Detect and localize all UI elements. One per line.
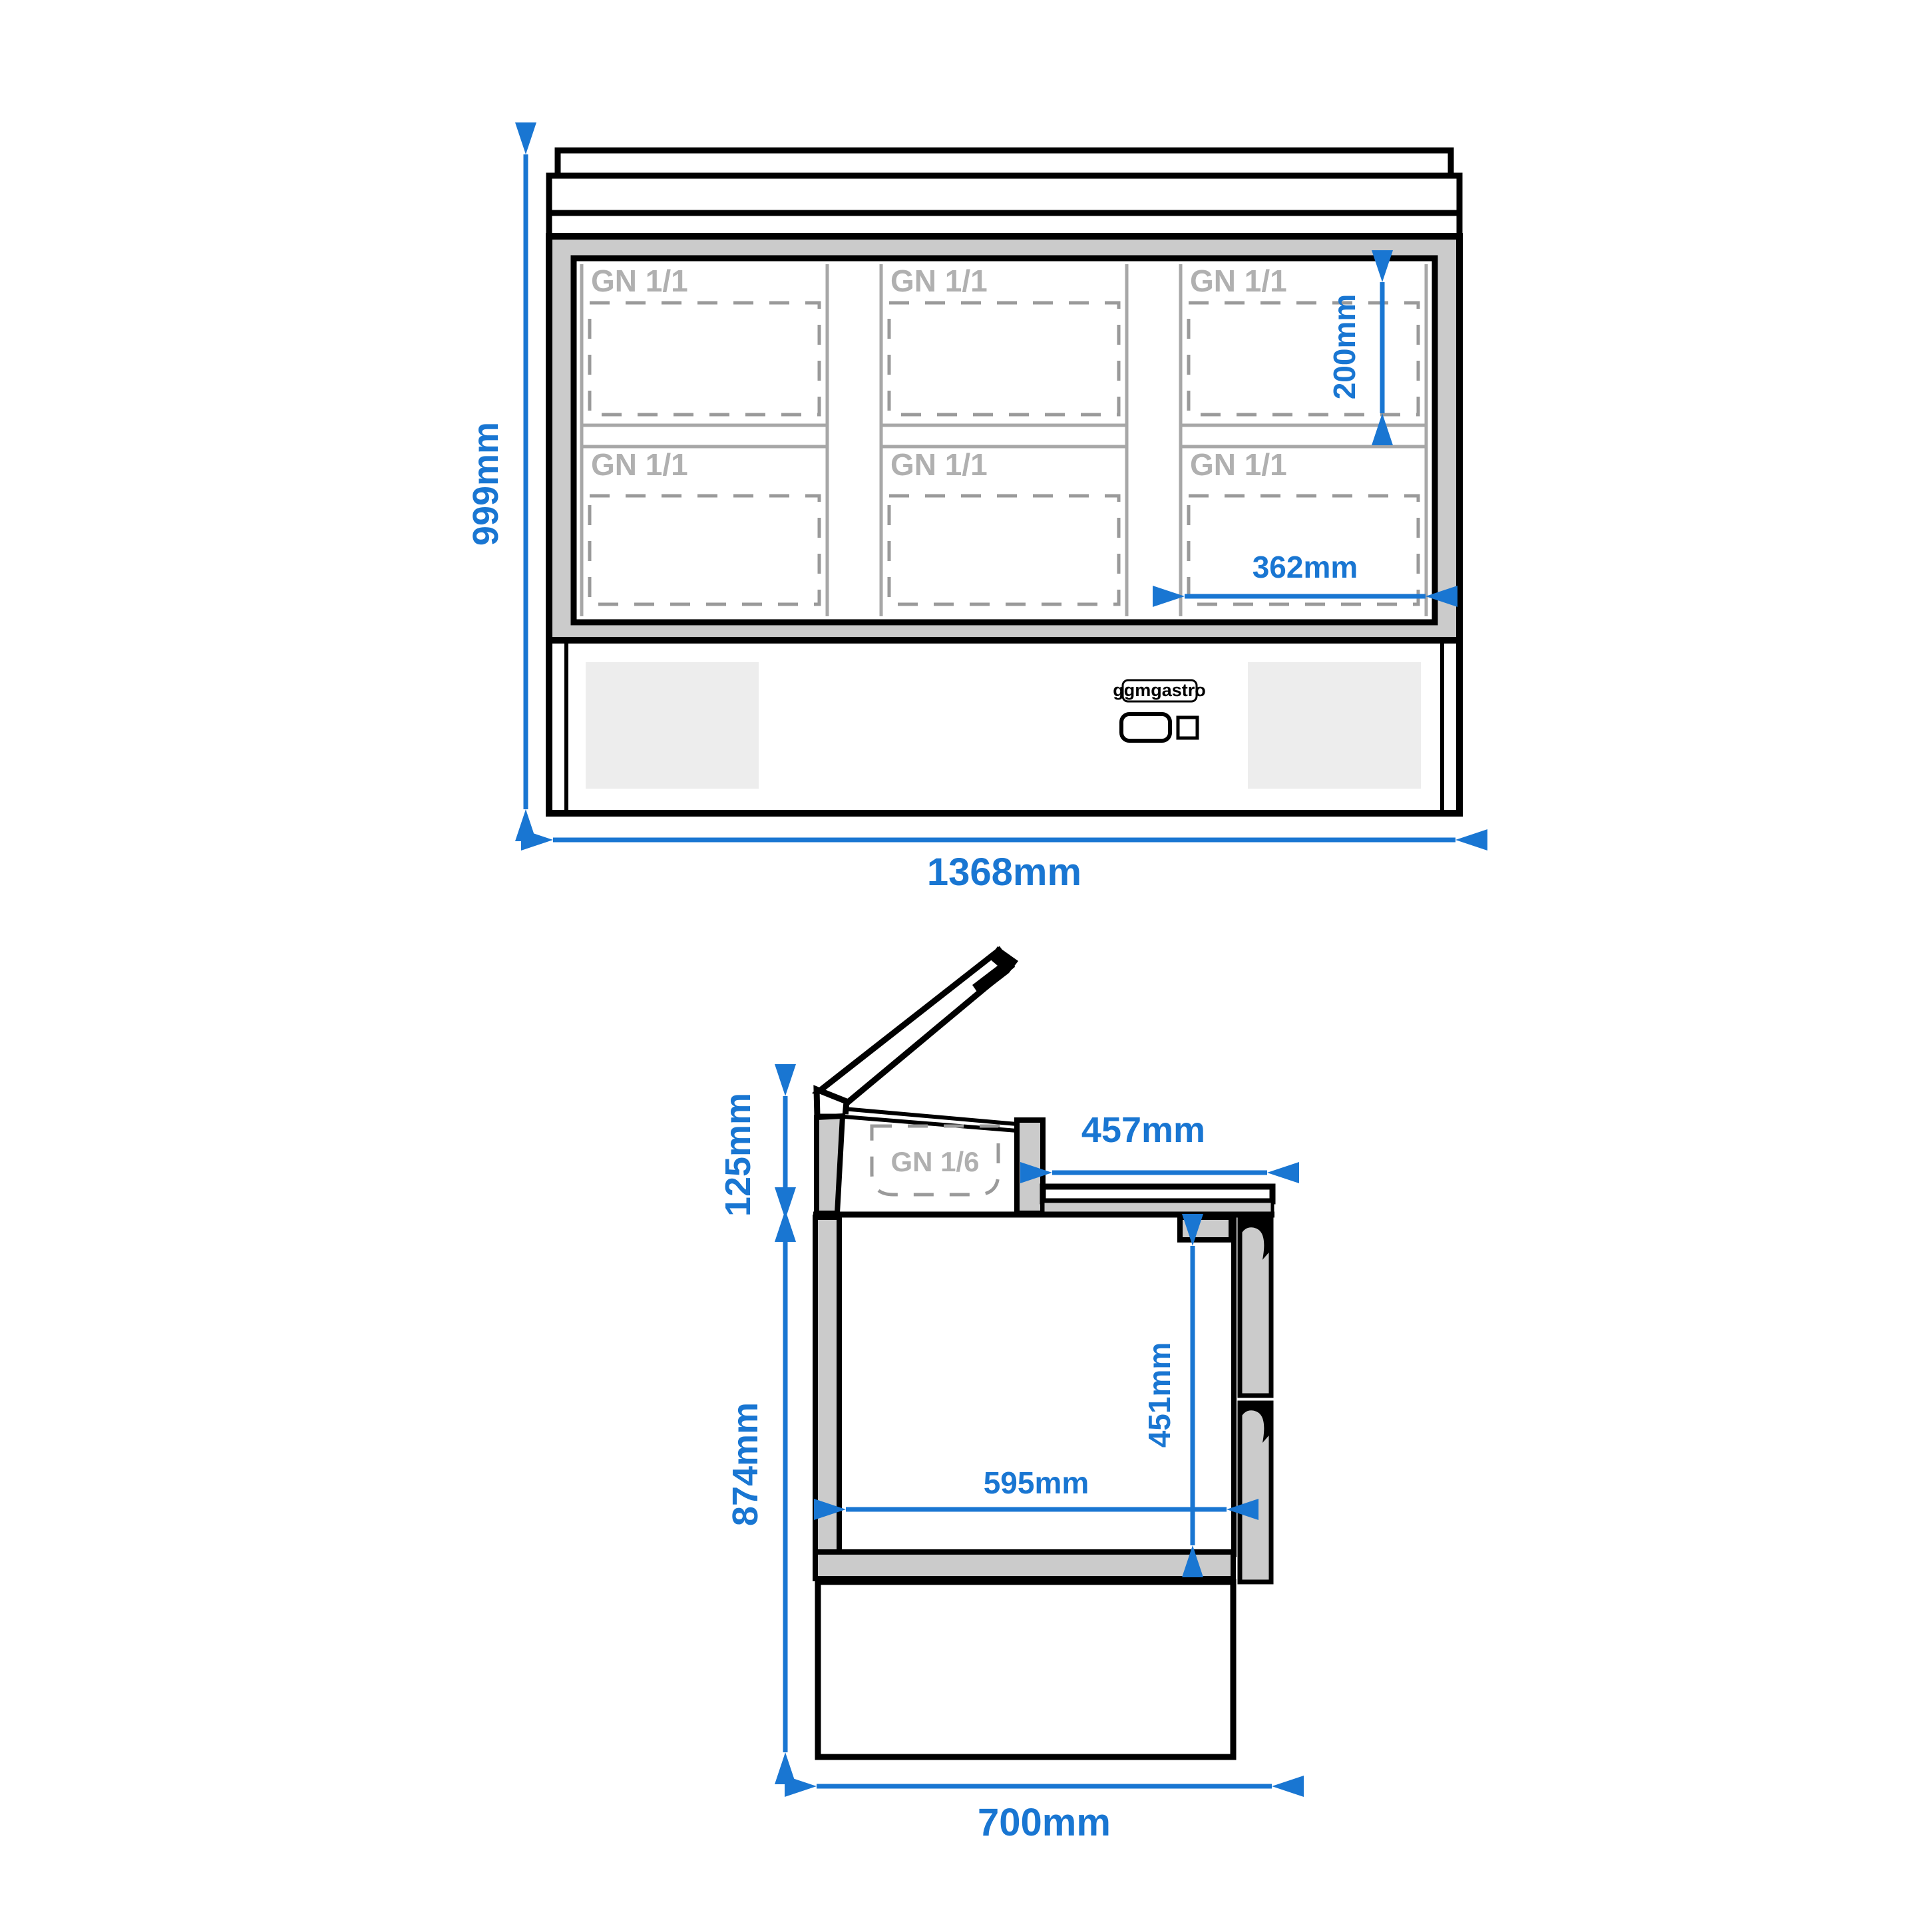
technical-drawing-page: GN 1/1 GN 1/1 GN 1/1 GN 1/1 GN 1/1 GN 1/…: [0, 0, 1932, 1932]
lid-front-strip: [549, 176, 1459, 213]
dim-overall-depth-label: 700mm: [978, 1801, 1111, 1844]
interior-top-notch: [1180, 1217, 1231, 1240]
pan-label: GN 1/1: [591, 264, 688, 298]
dim-interior-height-label: 451mm: [1142, 1342, 1177, 1448]
counter-underside: [1043, 1201, 1272, 1213]
dim-pan-depth-label: 200mm: [1327, 294, 1362, 400]
dim-pan-width-label: 362mm: [1253, 550, 1358, 584]
body-bottom-slab: [815, 1552, 1233, 1579]
control-panel: [1121, 714, 1197, 741]
base-plinth: [818, 1582, 1233, 1757]
lid-strip: [818, 950, 1011, 1103]
pan-label: GN 1/1: [1190, 264, 1287, 298]
dim-interior-depth-label: 595mm: [984, 1465, 1089, 1500]
dim-overall-depth: 700mm: [817, 1786, 1272, 1844]
controller-display: [1121, 714, 1170, 741]
dim-counter-depth: 457mm: [1052, 1110, 1267, 1173]
drawing-svg: GN 1/1 GN 1/1 GN 1/1 GN 1/1 GN 1/1 GN 1/…: [0, 0, 1932, 1932]
pan-label: GN 1/1: [890, 447, 988, 482]
dim-overall-width: 1368mm: [553, 840, 1455, 894]
brand-badge-label: ggmgastro: [1113, 680, 1206, 700]
dim-overall-width-label: 1368mm: [927, 851, 1081, 894]
dim-interior-depth: 595mm: [846, 1465, 1227, 1509]
side-view: GN 1/6 457mm 451mm: [718, 946, 1274, 1844]
dim-counter-depth-label: 457mm: [1081, 1110, 1205, 1150]
dim-interior-height: 451mm: [1142, 1246, 1193, 1545]
dim-overall-height-label: 999mm: [466, 422, 506, 546]
dim-overall-height: 999mm: [466, 154, 526, 809]
dim-lid-height: 125mm: [718, 1093, 785, 1217]
pan-label: GN 1/1: [890, 264, 988, 298]
counter-top: [1043, 1187, 1272, 1201]
drawer-front-lower: [1240, 1403, 1271, 1582]
pan-label: GN 1/1: [1190, 447, 1287, 482]
gn16-label: GN 1/6: [890, 1146, 979, 1177]
canopy-strip: [549, 213, 1459, 236]
dim-body-height-label: 874mm: [725, 1402, 765, 1526]
controller-switch: [1178, 717, 1197, 738]
pan-label: GN 1/1: [591, 447, 688, 482]
dim-body-height: 874mm: [725, 1219, 785, 1752]
well-left-wall: [817, 1116, 843, 1213]
lid-top-strip: [558, 150, 1451, 176]
vent-grille-left: [586, 662, 759, 789]
well-right-wall: [1017, 1120, 1043, 1213]
display-lid-open: [817, 946, 1018, 1117]
dim-lid-height-label: 125mm: [718, 1093, 758, 1217]
vent-grille-right: [1248, 662, 1421, 789]
brand-badge: ggmgastro: [1113, 680, 1206, 701]
front-view: GN 1/1 GN 1/1 GN 1/1 GN 1/1 GN 1/1 GN 1/…: [466, 150, 1459, 894]
drawer-front-upper: [1240, 1220, 1271, 1396]
body-left-wall: [815, 1217, 839, 1553]
